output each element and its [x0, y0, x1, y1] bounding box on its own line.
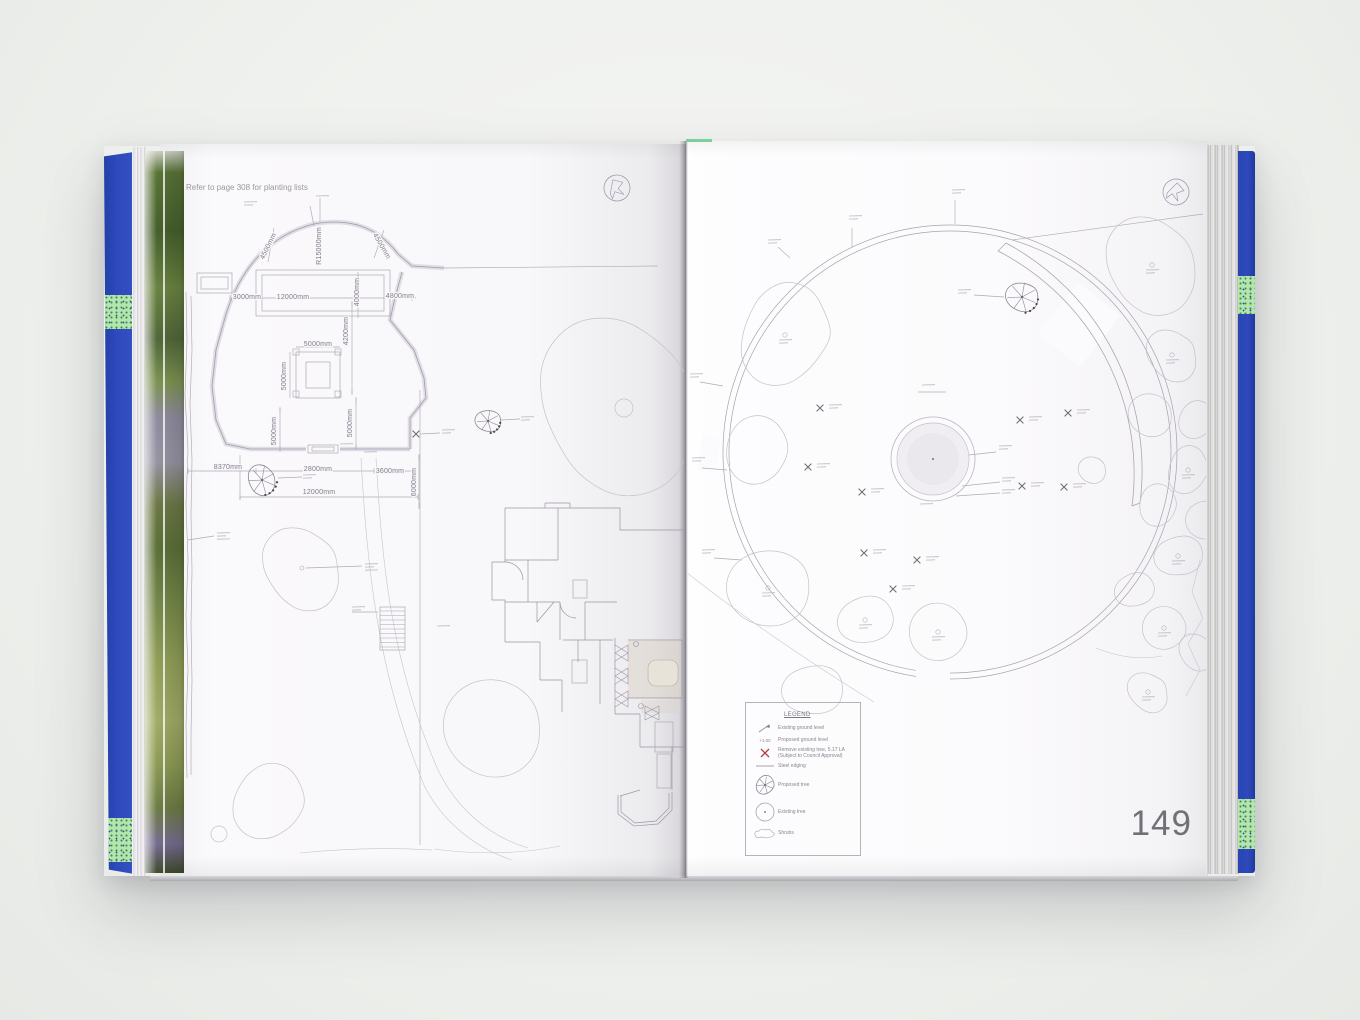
tree-removal-x-mark [859, 489, 866, 496]
dimension-label: 4500mm [259, 232, 278, 261]
dimension-label: 5000mm [347, 409, 354, 437]
photo-page-fore-edge [145, 151, 184, 873]
legend-label: Steel edging [778, 763, 855, 770]
dimension-label: 2800mm [304, 466, 332, 473]
steel-edging-icon [752, 764, 778, 768]
dimension-label: 6000mm [411, 468, 418, 496]
north-arrow-icon [601, 172, 633, 204]
legend-label: Existing tree [778, 809, 855, 816]
dimension-label: 4800mm [386, 293, 414, 300]
tree-removal-x-mark [805, 464, 812, 471]
tree-removal-x-mark [817, 405, 824, 412]
green-speckle-patch [1238, 799, 1255, 849]
dimension-label: 5000mm [281, 362, 288, 390]
dimension-label: 4000mm [354, 278, 361, 306]
dimension-label: 8370mm [214, 464, 242, 471]
legend-title: LEGEND [784, 712, 860, 718]
book-cover-left-edge [104, 152, 134, 874]
dimension-label: 3000mm [233, 294, 261, 301]
page-edges-right [1206, 145, 1239, 874]
book-photo-stage: Refer to page 308 for planting lists 450… [0, 0, 1360, 1020]
legend-row: Remove existing tree, 5.17 LA (Subject t… [752, 747, 855, 760]
proposed-tree-icon [752, 772, 778, 798]
tree-removal-x-mark [1017, 417, 1024, 424]
legend-row: Existing ground level [752, 723, 855, 734]
shrubs-icon [752, 826, 778, 840]
remove-tree-icon [752, 748, 778, 758]
dimension-label: 5000mm [304, 341, 332, 348]
existing-ground-level-icon [752, 723, 778, 734]
tree-removal-x-mark [413, 431, 420, 438]
page-number: 149 [1120, 804, 1192, 844]
legend-label: Existing ground level [778, 725, 855, 732]
green-speckle-patch [104, 295, 134, 329]
existing-tree-icon [752, 801, 778, 823]
north-arrow-icon [1159, 175, 1192, 208]
legend-box: LEGEND Existing ground level +1.00 Propo… [745, 702, 861, 856]
tree-removal-x-mark [1061, 484, 1068, 491]
book-cover-right-edge [1238, 151, 1255, 873]
green-speckle-patch [1238, 276, 1255, 314]
walled-garden-plan-drawing: Refer to page 308 for planting lists 450… [150, 150, 684, 872]
legend-row: Shrubs [752, 826, 855, 840]
dimension-label: 12000mm [303, 489, 336, 496]
page-stack-bottom-edge [150, 876, 1238, 881]
dimension-label: 12000mm [277, 294, 310, 301]
tree-removal-x-mark [861, 550, 868, 557]
tree-removal-x-mark [1065, 410, 1072, 417]
dimension-label: 5000mm [271, 417, 278, 445]
legend-row: Proposed tree [752, 772, 855, 798]
legend-row: Steel edging [752, 763, 855, 770]
tree-removal-x-mark [914, 557, 921, 564]
header-note: Refer to page 308 for planting lists [186, 183, 308, 192]
tree-removal-x-mark [890, 586, 897, 593]
dimension-label: 4200mm [343, 317, 350, 345]
legend-label: Shrubs [778, 830, 855, 837]
legend-row: Existing tree [752, 801, 855, 823]
ribbon-sliver [686, 139, 712, 142]
dimension-label: 3600mm [376, 468, 404, 475]
dimension-label: R15000mm [316, 227, 323, 265]
legend-label: Remove existing tree, 5.17 LA (Subject t… [778, 747, 855, 760]
legend-label: Proposed tree [778, 782, 855, 789]
legend-row: +1.00 Proposed ground level [752, 737, 855, 744]
tree-removal-x-mark [1019, 483, 1026, 490]
proposed-ground-level-icon: +1.00 [752, 738, 778, 743]
legend-label: Proposed ground level [778, 737, 855, 744]
